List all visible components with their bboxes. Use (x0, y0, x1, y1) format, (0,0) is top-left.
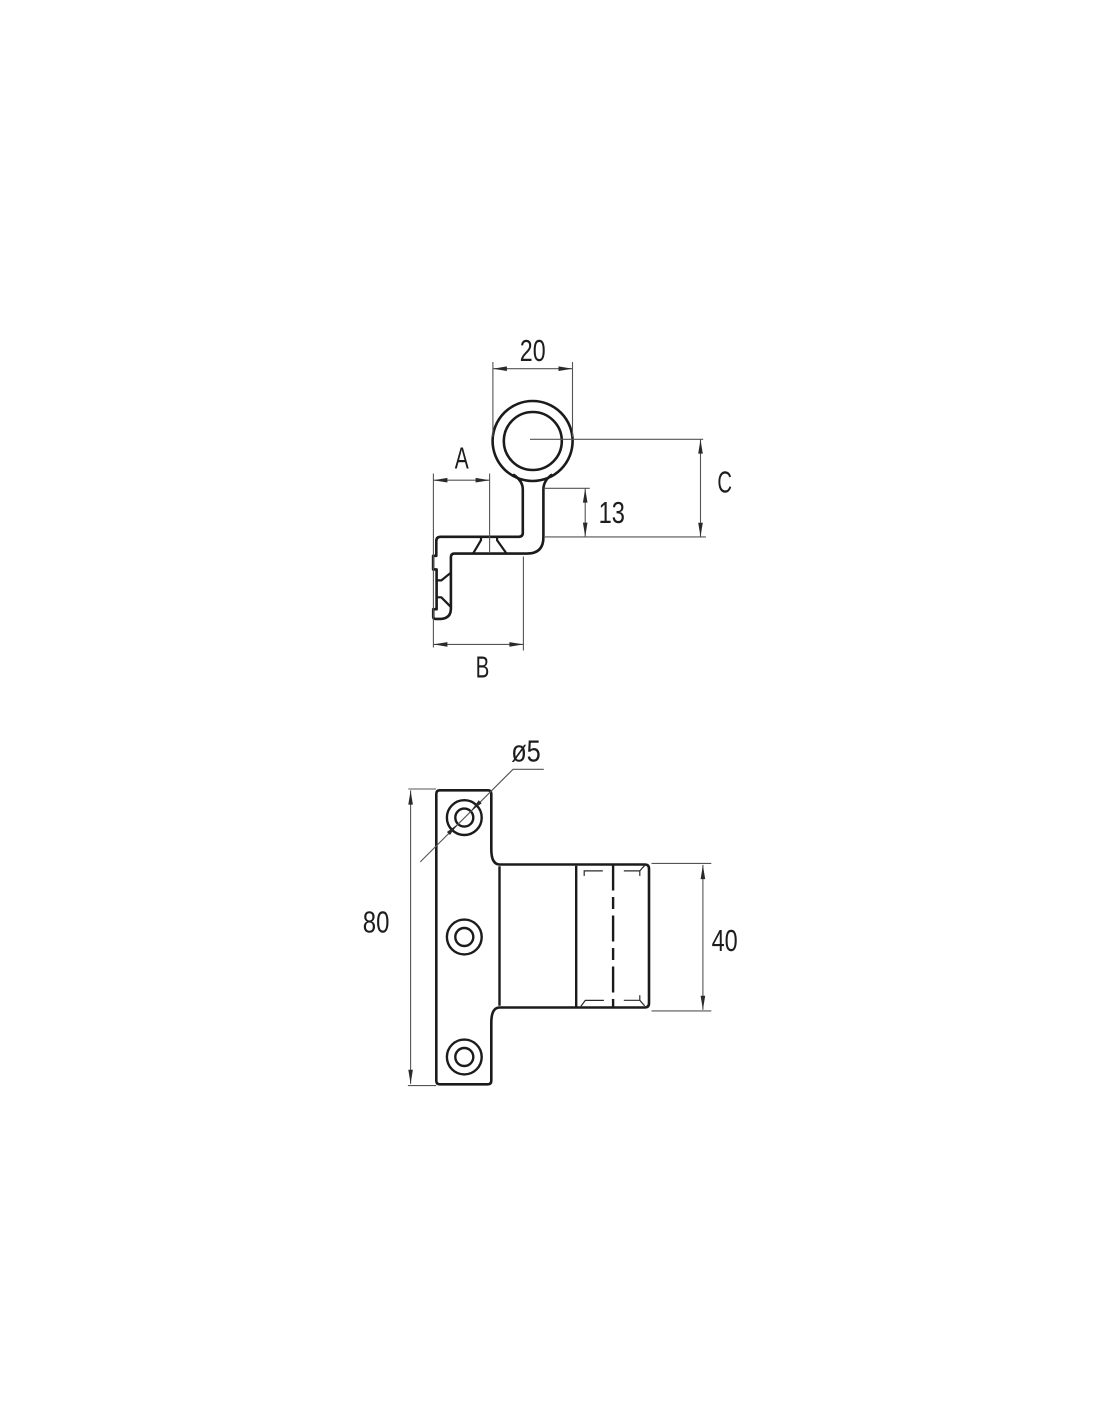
svg-text:C: C (717, 465, 732, 500)
svg-text:13: 13 (599, 495, 625, 530)
svg-text:20: 20 (520, 333, 546, 368)
svg-text:ø5: ø5 (511, 733, 541, 768)
svg-text:80: 80 (363, 904, 390, 939)
svg-text:B: B (476, 650, 490, 685)
svg-text:A: A (455, 440, 469, 475)
svg-text:40: 40 (712, 923, 738, 958)
